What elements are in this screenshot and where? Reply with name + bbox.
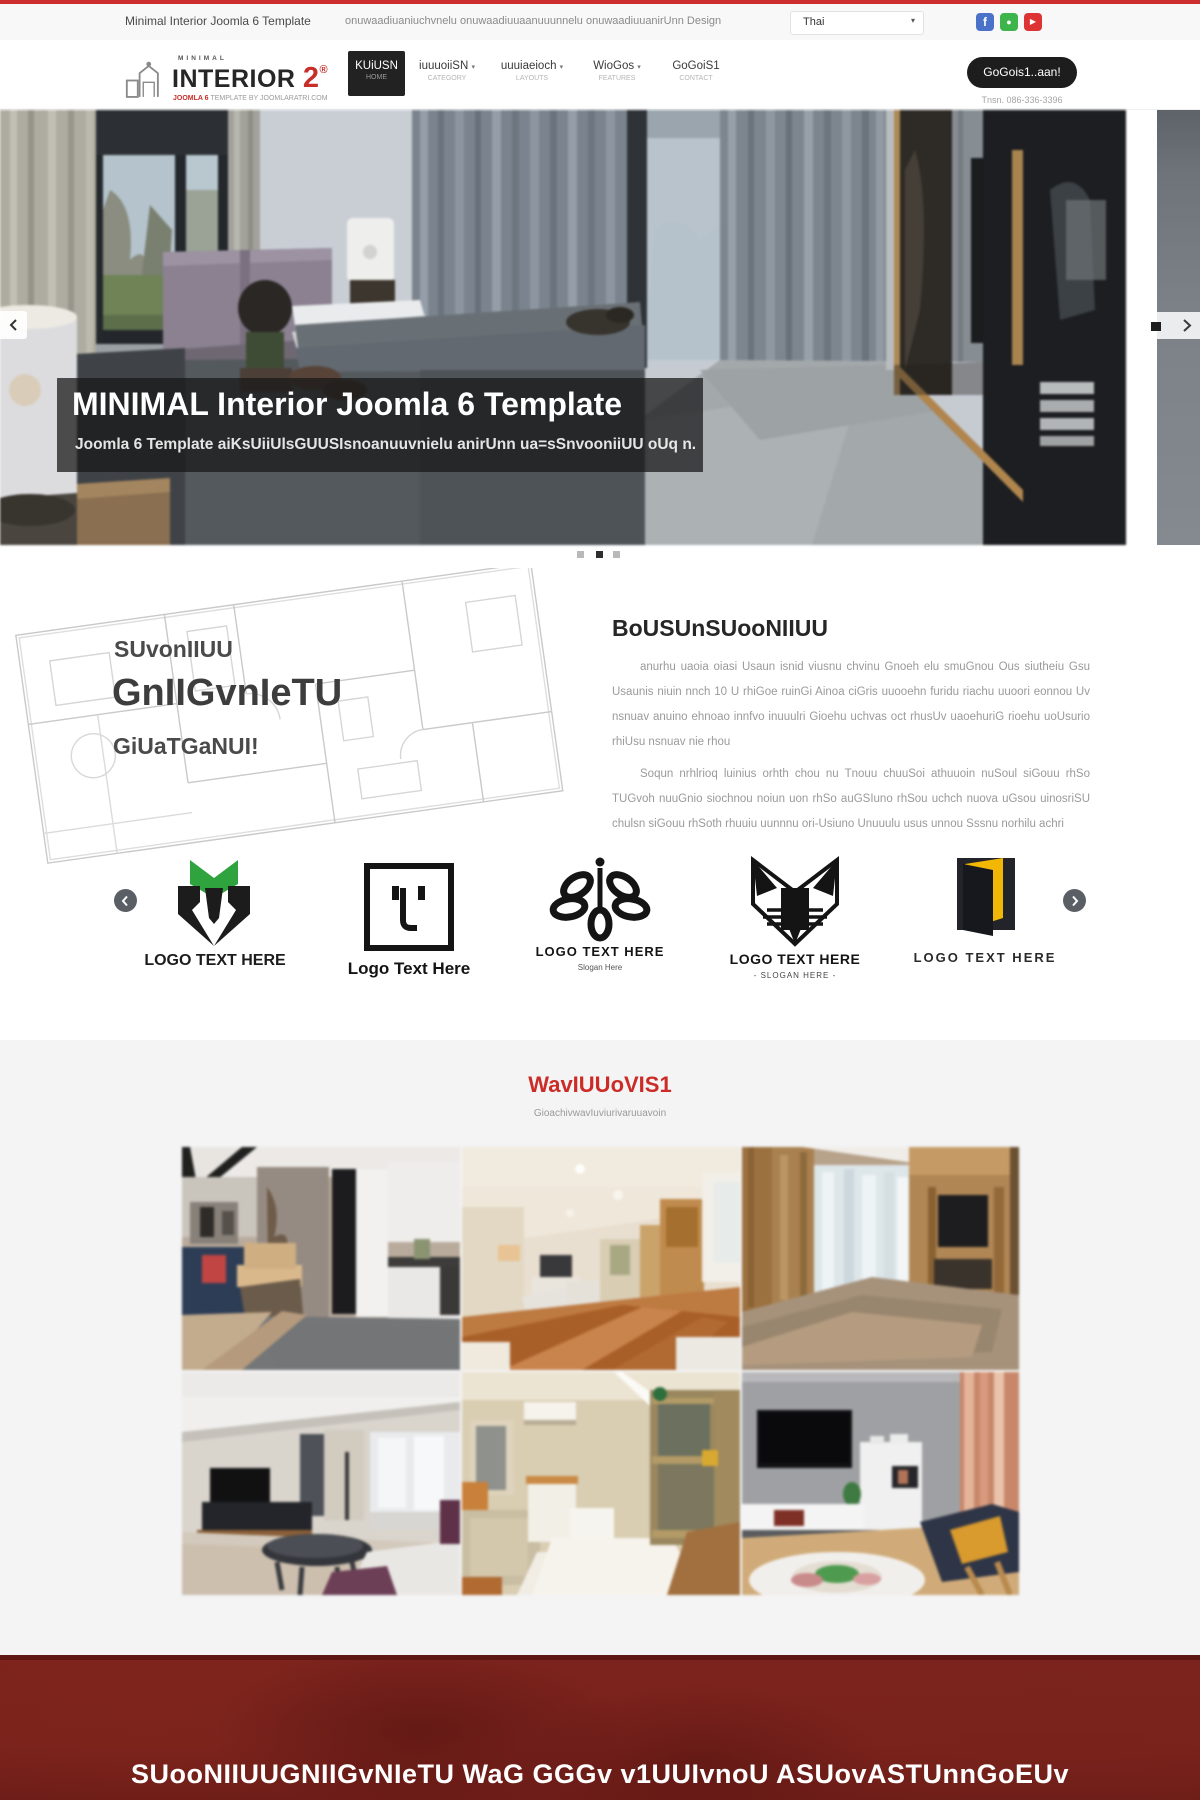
- svg-text:LOGO TEXT HERE: LOGO TEXT HERE: [730, 951, 861, 967]
- svg-text:LOGO TEXT HERE: LOGO TEXT HERE: [144, 952, 286, 969]
- svg-text:Slogan Here: Slogan Here: [578, 963, 623, 972]
- svg-text:Logo Text Here: Logo Text Here: [348, 959, 470, 978]
- svg-text:LOGO TEXT HERE: LOGO TEXT HERE: [536, 944, 665, 959]
- svg-text:LOGO TEXT HERE: LOGO TEXT HERE: [914, 950, 1057, 965]
- svg-text:- SLOGAN HERE -: - SLOGAN HERE -: [754, 971, 837, 980]
